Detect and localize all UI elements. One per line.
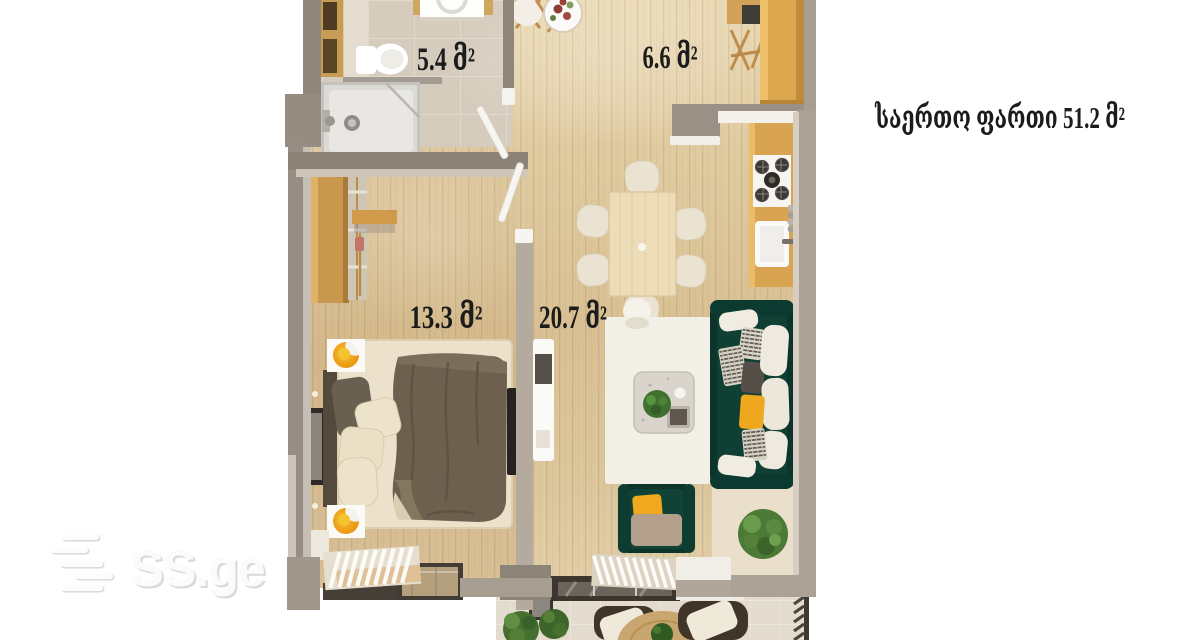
svg-text:13.3 მ²: 13.3 მ²: [410, 300, 483, 336]
svg-text:SS.ge: SS.ge: [130, 540, 264, 597]
svg-text:20.7 მ²: 20.7 მ²: [539, 300, 607, 336]
svg-text:საერთო ფართი 51.2 მ²: საერთო ფართი 51.2 მ²: [874, 100, 1125, 135]
svg-text:5.4 მ²: 5.4 მ²: [417, 42, 475, 78]
svg-text:6.6 მ²: 6.6 მ²: [643, 40, 698, 76]
